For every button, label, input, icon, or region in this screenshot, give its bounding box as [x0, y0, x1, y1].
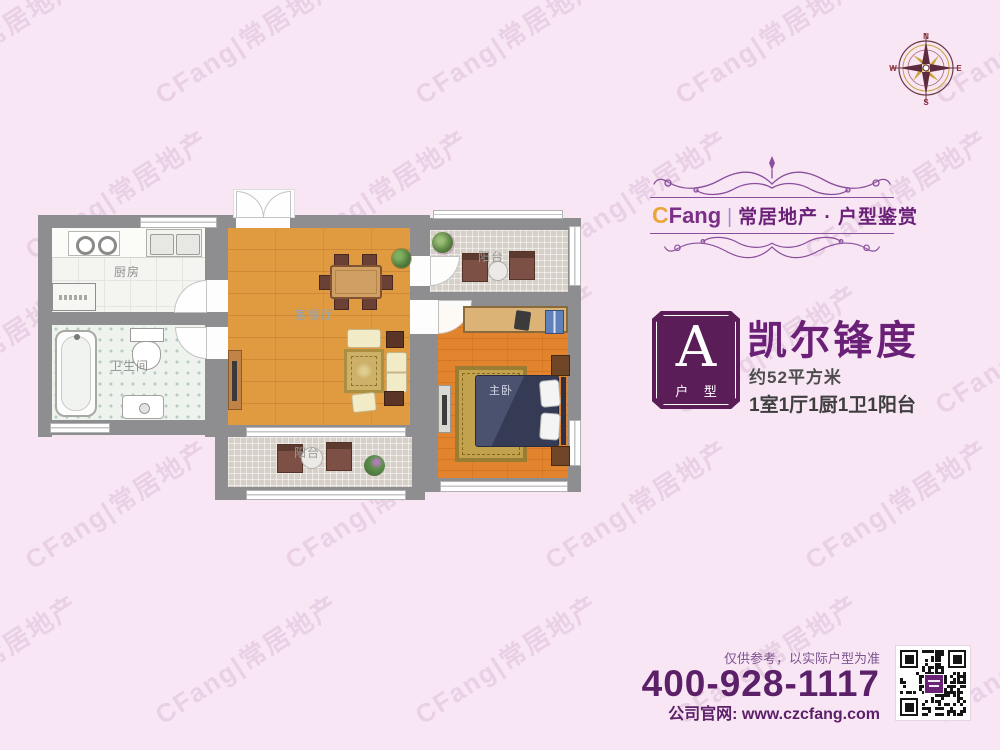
bathtub [55, 330, 97, 417]
brand-rule-top [650, 197, 894, 198]
side-table [386, 331, 404, 348]
living-label: 客餐厅 [295, 306, 334, 323]
kitchen-door-opening [205, 280, 228, 312]
bathroom-label: 卫生间 [110, 357, 149, 374]
nightstand [551, 446, 570, 466]
plant [392, 249, 411, 268]
balcony-chair [326, 442, 352, 471]
side-table [384, 391, 404, 406]
balcony-top-label: 阳台 [478, 248, 504, 265]
qr-finder [948, 650, 966, 668]
flourish-bottom [648, 236, 896, 276]
badge-letter: A [652, 313, 740, 383]
plant [432, 232, 453, 253]
dining-chair [381, 275, 393, 290]
bedroom-label: 主卧 [489, 382, 513, 398]
stove [68, 231, 120, 256]
svg-text:N: N [923, 32, 929, 41]
living-room-floor [228, 228, 410, 425]
pillow [539, 379, 561, 408]
dining-chair [362, 298, 377, 310]
headboard [561, 377, 566, 445]
floor-plan: 厨房 卫生间 客餐厅 阳台 主卧 阳台 [0, 0, 620, 520]
dining-table [330, 265, 382, 299]
bathroom-sink [122, 395, 164, 419]
bedroom-side-window [569, 420, 581, 466]
balcony-door-opening [410, 256, 430, 286]
watermark-text: CFang|常居地产 [0, 585, 85, 732]
sofa [386, 352, 407, 393]
bathroom-window [50, 423, 110, 433]
wall [412, 437, 438, 492]
watermark-text: CFang|常居地产 [927, 275, 1000, 422]
qr-code [895, 645, 971, 721]
balcony-sliding-door [246, 427, 406, 437]
bedroom-door-opening [410, 300, 438, 334]
svg-text:W: W [889, 64, 897, 73]
compass-icon: N S E W [888, 30, 964, 106]
unit-type-badge: A 户 型 [652, 311, 740, 409]
svg-text:S: S [923, 98, 929, 106]
wall [38, 312, 208, 325]
listing-area: 约52平方米 [749, 363, 842, 388]
balcony-top-sill [433, 210, 563, 219]
living-rug [344, 349, 384, 393]
stool [351, 392, 377, 413]
watermark-text: CFang|常居地产 [147, 585, 345, 732]
brand-divider: | [727, 206, 732, 228]
wardrobe [463, 306, 568, 333]
kitchen-window [140, 217, 217, 228]
brand-rule-bottom [650, 233, 894, 234]
listing-rooms: 1室1厅1厨1卫1阳台 [749, 390, 916, 417]
bathroom-door-opening [205, 327, 228, 359]
wall [425, 218, 580, 230]
listing-title: 凯尔锋度 [747, 308, 919, 366]
armchair [347, 329, 381, 348]
nightstand [551, 355, 570, 376]
balcony-chair [509, 251, 535, 280]
kitchen-sink [146, 229, 202, 257]
balcony-top-window [569, 226, 581, 286]
footer-phone: 400-928-1117 [480, 663, 880, 705]
balcony-bottom-window [246, 490, 406, 500]
plant [364, 455, 385, 476]
pillow [539, 412, 561, 440]
bedroom-bottom-window [440, 481, 568, 492]
watermark-text: CFang|常居地产 [667, 0, 865, 112]
utility-box [52, 283, 96, 311]
flourish-top [648, 152, 896, 196]
kitchen-label: 厨房 [114, 263, 140, 280]
bedroom-desk [438, 385, 451, 433]
tv-cabinet [228, 350, 242, 410]
brand-tagline: 常居地产 · 户型鉴赏 [738, 207, 918, 228]
watermark-text: CFang|常居地产 [797, 430, 995, 577]
qr-finder [900, 698, 918, 716]
dining-chair [334, 298, 349, 310]
footer-website: 公司官网: www.czcfang.com [580, 700, 880, 724]
wall [38, 215, 52, 437]
brand-logo: CFang | 常居地产 · 户型鉴赏 [652, 202, 892, 229]
svg-text:E: E [956, 64, 962, 73]
brand-logo-rest: Fang [669, 203, 722, 228]
poster-canvas: CFang|常居地产CFang|常居地产CFang|常居地产CFang|常居地产… [0, 0, 1000, 750]
brand-logo-c: C [652, 202, 669, 228]
qr-center-logo [924, 674, 944, 694]
watermark-text: CFang|常居地产 [407, 585, 605, 732]
qr-finder [900, 650, 918, 668]
balcony-bottom-label: 阳台 [294, 444, 320, 461]
wall [205, 215, 228, 437]
badge-caption: 户 型 [652, 381, 740, 400]
